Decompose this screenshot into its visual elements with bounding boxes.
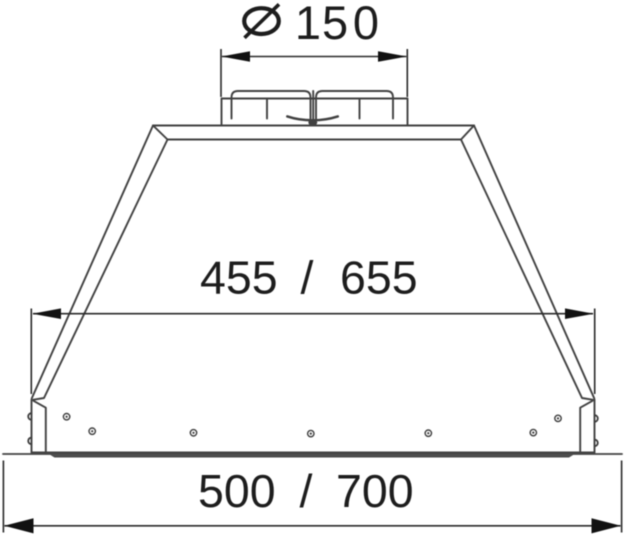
svg-text:0: 0	[353, 0, 379, 49]
svg-text:/: /	[299, 465, 312, 517]
svg-text:455: 455	[200, 252, 278, 304]
svg-text:655: 655	[340, 252, 418, 304]
svg-text:/: /	[300, 252, 313, 304]
svg-text:1: 1	[295, 0, 321, 49]
svg-text:700: 700	[336, 465, 414, 517]
svg-text:500: 500	[198, 465, 276, 517]
svg-text:5: 5	[322, 0, 348, 49]
